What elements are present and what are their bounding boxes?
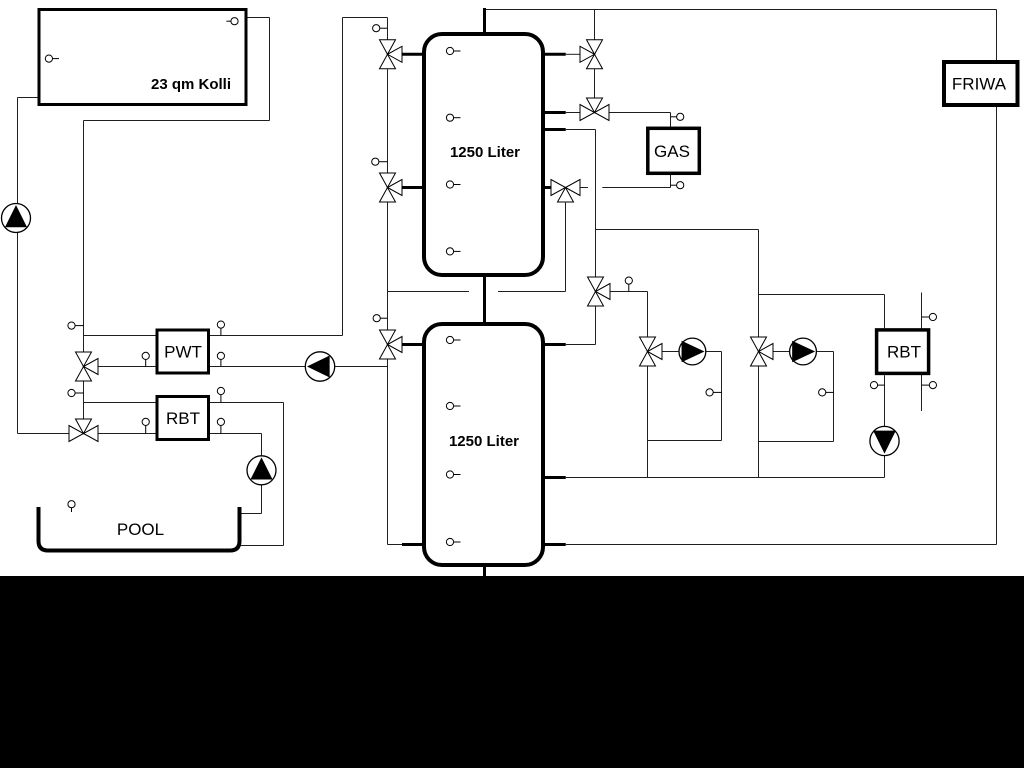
svg-text:PWT: PWT: [164, 343, 202, 362]
svg-text:RBT: RBT: [887, 343, 921, 362]
svg-text:RBT: RBT: [166, 409, 200, 428]
svg-text:1250 Liter: 1250 Liter: [449, 433, 519, 450]
svg-text:23 qm Kolli: 23 qm Kolli: [151, 76, 231, 93]
svg-text:POOL: POOL: [117, 520, 164, 539]
svg-text:GAS: GAS: [654, 142, 690, 161]
svg-text:FRIWA: FRIWA: [952, 75, 1007, 94]
svg-text:1250 Liter: 1250 Liter: [450, 144, 520, 161]
